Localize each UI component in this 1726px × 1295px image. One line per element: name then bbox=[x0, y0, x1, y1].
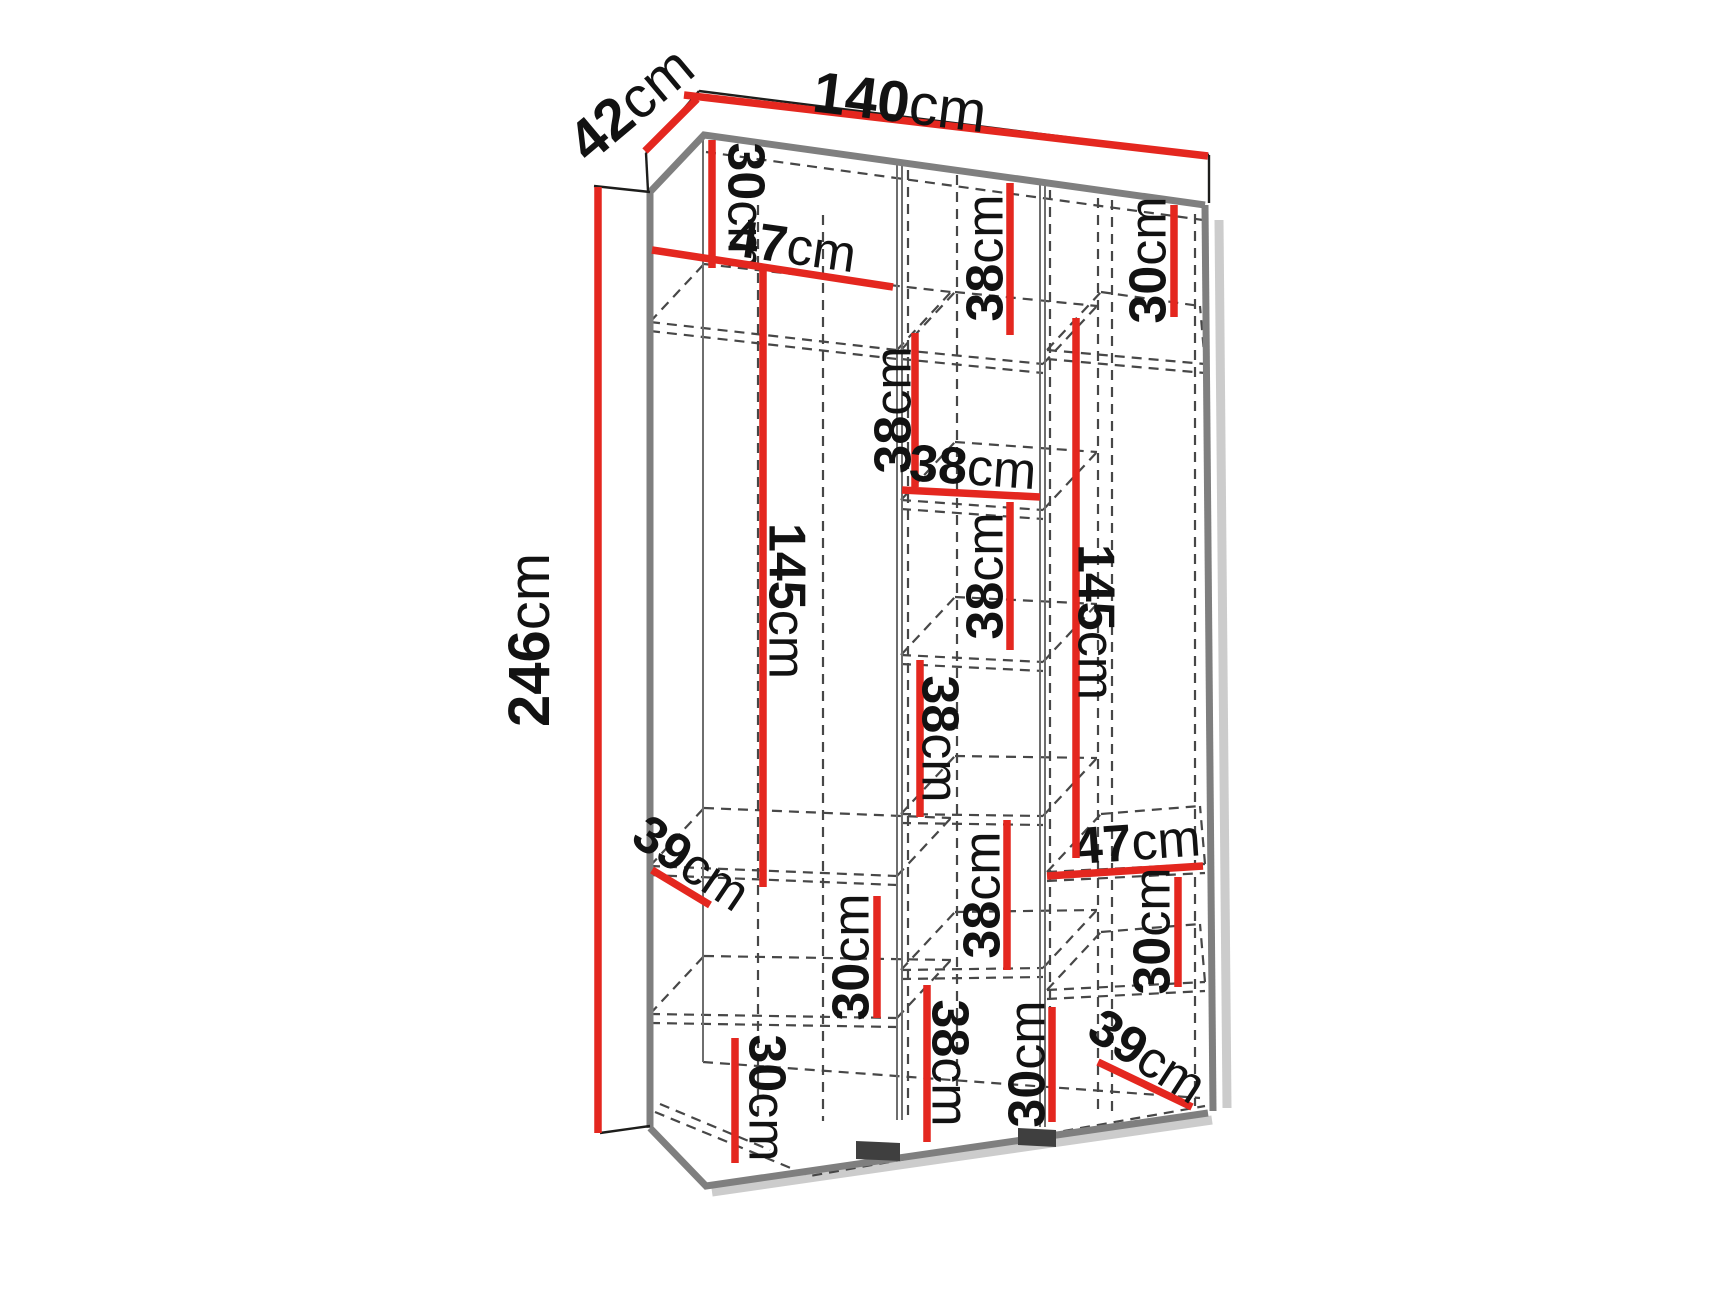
dim-mid-38cm-b-label: 38cm bbox=[957, 512, 1015, 639]
dim-top-left-47cm-label: 47cm bbox=[726, 209, 860, 284]
dim-left-30cm-label: 30cm bbox=[823, 893, 881, 1020]
panel-outline bbox=[600, 1126, 650, 1133]
shelf-front-edge bbox=[901, 977, 1043, 979]
dim-bottom-mid-38cm-label: 38cm bbox=[920, 999, 978, 1126]
dimension-right-145cm: 145cm bbox=[1066, 318, 1124, 858]
shelf-front-edge bbox=[650, 1023, 897, 1027]
dim-left-145cm-label: 145cm bbox=[757, 523, 815, 679]
dimension-mid-width-38cm: 38cm bbox=[902, 434, 1040, 501]
shelf-side-edge bbox=[897, 292, 951, 350]
dim-right-30cm-label: 30cm bbox=[1124, 867, 1182, 994]
dim-top-right-30cm-label: 30cm bbox=[1120, 196, 1178, 323]
dim-bottom-mid-30cm-label: 30cm bbox=[999, 1000, 1057, 1127]
shelf-front-edge bbox=[901, 823, 1043, 825]
panel-outline bbox=[646, 153, 648, 191]
plinth-foot bbox=[1018, 1128, 1056, 1147]
shelf-front-edge bbox=[1047, 359, 1205, 373]
dimension-right-30cm: 30cm bbox=[1124, 867, 1182, 994]
dim-right-47cm-label: 47cm bbox=[1072, 809, 1203, 876]
dimension-left-145cm: 145cm bbox=[757, 264, 815, 887]
shelf-side-edge bbox=[1200, 924, 1205, 982]
shelf-side-edge bbox=[1047, 932, 1101, 990]
dimension-mid-38cm-c: 38cm bbox=[910, 660, 968, 817]
dimension-right-47cm: 47cm bbox=[1047, 809, 1203, 876]
dimension-left-30cm: 30cm bbox=[823, 893, 881, 1020]
dimension-top-left-47cm: 47cm bbox=[652, 209, 893, 287]
dim-right-145cm-label: 145cm bbox=[1066, 544, 1124, 700]
plinth-foot bbox=[856, 1141, 900, 1161]
shelf-side-edge bbox=[897, 818, 951, 876]
dim-height-246cm-label: 246cm bbox=[497, 553, 562, 727]
dimension-bottom-left-30cm: 30cm bbox=[735, 1034, 795, 1163]
dim-top-mid-38cm-label: 38cm bbox=[957, 194, 1015, 321]
dim-bottom-left-30cm-label: 30cm bbox=[737, 1034, 795, 1161]
dimension-mid-38cm-b: 38cm bbox=[957, 502, 1015, 650]
shelf-front-edge bbox=[901, 500, 1043, 510]
dimension-top-mid-38cm: 38cm bbox=[957, 183, 1015, 335]
dimension-bottom-mid-30cm: 30cm bbox=[999, 1000, 1057, 1127]
shelf-front-edge bbox=[901, 968, 1043, 970]
wardrobe-dimension-diagram: 42cm140cm246cm30cm47cm38cm30cm38cm38cm38… bbox=[0, 0, 1726, 1295]
dimension-bottom-mid-38cm: 38cm bbox=[920, 985, 978, 1142]
shelf-side-edge bbox=[650, 956, 704, 1014]
dim-width-140cm-label: 140cm bbox=[809, 60, 990, 146]
diagram-canvas: 42cm140cm246cm30cm47cm38cm30cm38cm38cm38… bbox=[0, 0, 1726, 1295]
dim-mid-38cm-d-label: 38cm bbox=[954, 831, 1012, 958]
shelf-back-edge bbox=[704, 808, 951, 818]
dim-mid-width-38cm-label: 38cm bbox=[907, 434, 1038, 501]
cabinet-shadow bbox=[1219, 220, 1227, 1108]
dimension-height-246cm: 246cm bbox=[497, 187, 598, 1133]
carcass-edge bbox=[1205, 205, 1213, 1111]
shelf-side-edge bbox=[650, 264, 704, 322]
dimension-top-right-30cm: 30cm bbox=[1120, 196, 1178, 323]
dimension-mid-38cm-d: 38cm bbox=[954, 820, 1012, 970]
panel-outline bbox=[594, 186, 650, 192]
dim-mid-38cm-c-label: 38cm bbox=[910, 675, 968, 802]
dimension-annotations-layer: 42cm140cm246cm30cm47cm38cm30cm38cm38cm38… bbox=[497, 34, 1216, 1163]
